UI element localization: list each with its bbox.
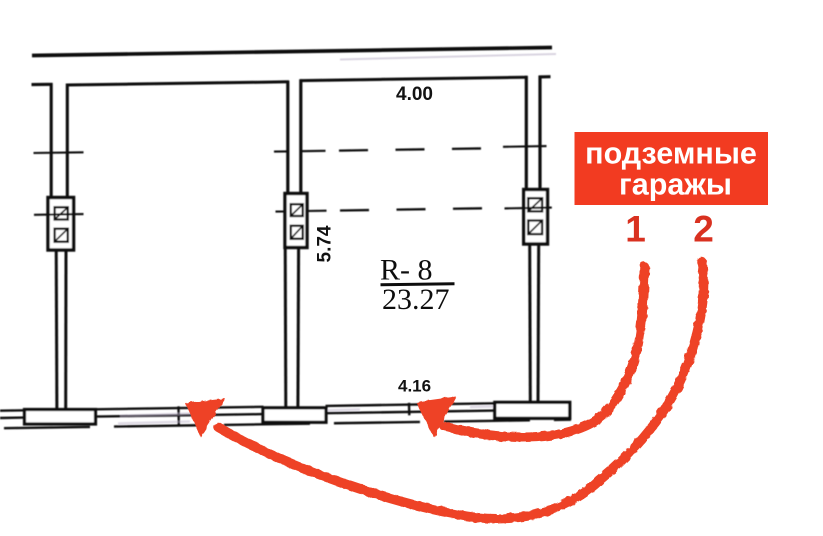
svg-text:4.16: 4.16 xyxy=(398,377,431,396)
svg-text:4.00: 4.00 xyxy=(396,84,433,105)
svg-text:подземные: подземные xyxy=(585,137,757,171)
svg-text:R- 8: R- 8 xyxy=(380,254,433,287)
svg-text:5.74: 5.74 xyxy=(315,225,336,262)
svg-text:1: 1 xyxy=(625,209,646,250)
svg-text:2: 2 xyxy=(693,209,714,250)
svg-text:гаражы: гаражы xyxy=(619,168,732,202)
svg-text:23.27: 23.27 xyxy=(382,283,450,316)
